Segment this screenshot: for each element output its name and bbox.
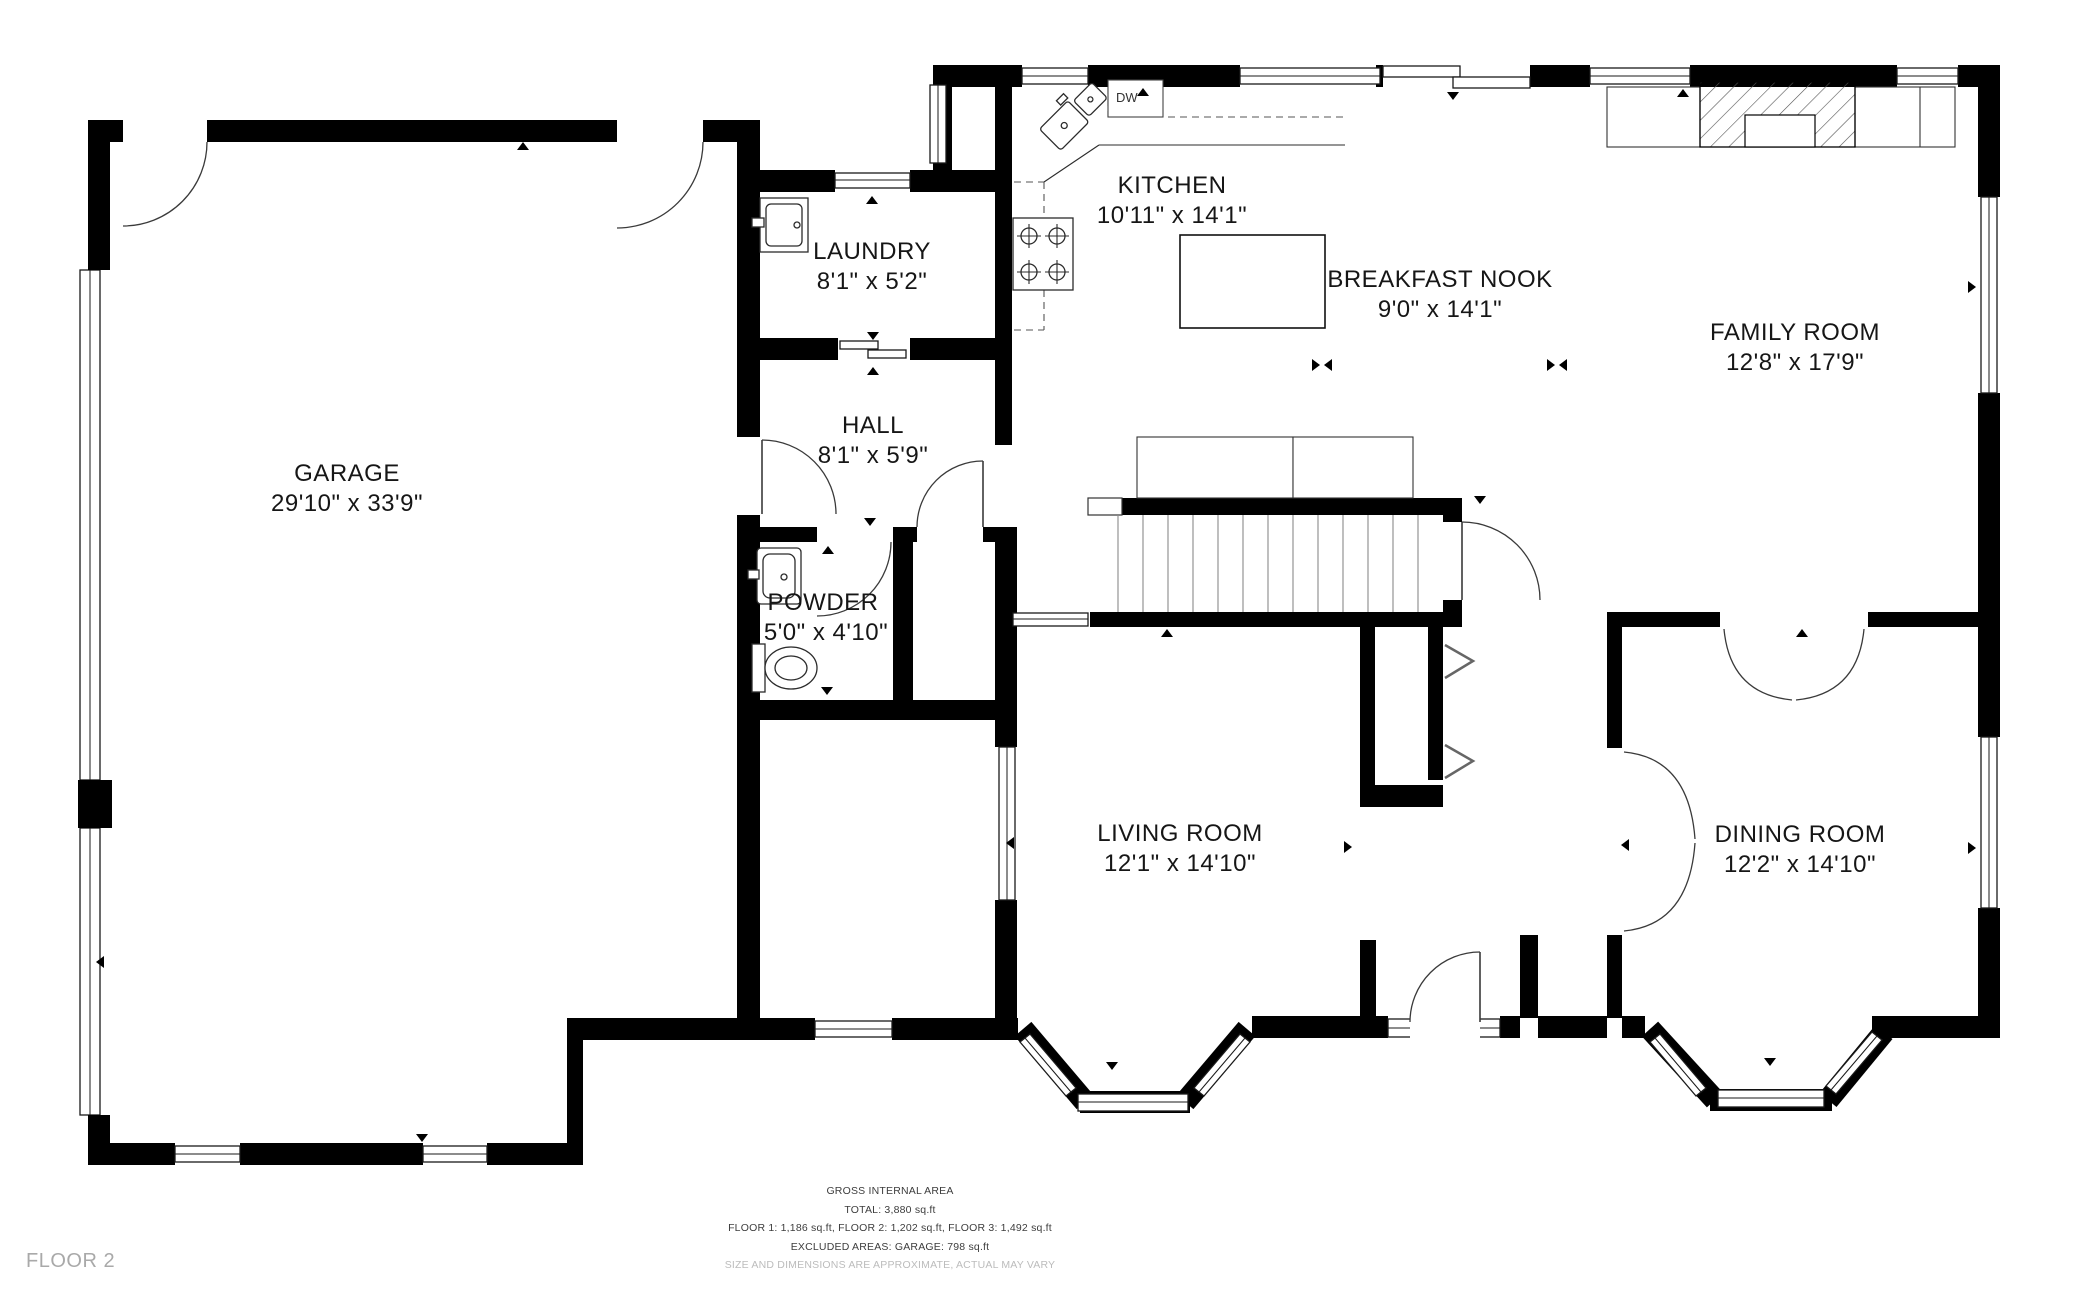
- dining-west-french-door: [1624, 843, 1695, 931]
- excluded-areas: EXCLUDED AREAS: GARAGE: 798 sq.ft: [490, 1238, 1290, 1257]
- dining-french-door: [1724, 629, 1792, 700]
- room-dims-powder: 5'0" x 4'10": [764, 619, 888, 646]
- garage-door-swing-left: [123, 142, 207, 226]
- stair-cabinet: [1137, 437, 1293, 498]
- room-label-living-room: LIVING ROOM: [1097, 820, 1263, 847]
- room-label-garage: GARAGE: [294, 460, 400, 487]
- stair-landing: [1088, 498, 1122, 515]
- stair-family-door: [1462, 522, 1540, 600]
- dishwasher: DW: [1108, 80, 1163, 117]
- total-area: TOTAL: 3,880 sq.ft: [490, 1201, 1290, 1220]
- front-entry-door: [1410, 952, 1480, 1022]
- kitchen-island: [1180, 235, 1325, 328]
- room-dims-kitchen: 10'11" x 14'1": [1097, 202, 1247, 229]
- room-dims-breakfast-nook: 9'0" x 14'1": [1378, 296, 1502, 323]
- firebox: [1745, 115, 1815, 147]
- area-summary: GROSS INTERNAL AREA TOTAL: 3,880 sq.ft F…: [490, 1182, 1290, 1275]
- room-label-family-room: FAMILY ROOM: [1710, 319, 1880, 346]
- room-dims-laundry: 8'1" x 5'2": [817, 268, 927, 295]
- staircase: [1088, 437, 1418, 612]
- dining-french-door: [1796, 629, 1864, 700]
- dishwasher-label: DW: [1116, 90, 1138, 105]
- room-dims-dining-room: 12'2" x 14'10": [1724, 851, 1876, 878]
- windows: [175, 66, 1997, 1162]
- room-label-powder: POWDER: [768, 589, 879, 616]
- hall-closet-door: [917, 461, 983, 527]
- dining-west-french-door: [1624, 752, 1695, 839]
- garage-door-swing-right: [617, 142, 703, 228]
- room-label-dining-room: DINING ROOM: [1715, 821, 1886, 848]
- room-label-breakfast-nook: BREAKFAST NOOK: [1327, 266, 1552, 293]
- gross-area-title: GROSS INTERNAL AREA: [490, 1182, 1290, 1201]
- room-dims-living-room: 12'1" x 14'10": [1104, 850, 1256, 877]
- room-label-laundry: LAUNDRY: [813, 238, 931, 265]
- floor-plan-drawing: DW: [0, 0, 2080, 1299]
- bifold-door-icon: [1445, 745, 1473, 778]
- room-dims-family-room: 12'8" x 17'9": [1726, 349, 1864, 376]
- fireplace-cabinet: [1855, 87, 1955, 147]
- stove-range: [1013, 218, 1073, 290]
- room-labels: GARAGE 29'10" x 33'9" LAUNDRY 8'1" x 5'2…: [271, 172, 1885, 878]
- front-door-gap: [1410, 1016, 1480, 1040]
- doors: [123, 142, 1864, 1022]
- bifold-door-icon: [1445, 645, 1473, 678]
- laundry-sink: [752, 198, 808, 252]
- disclaimer: SIZE AND DIMENSIONS ARE APPROXIMATE, ACT…: [490, 1256, 1290, 1275]
- toilet: [752, 644, 817, 692]
- room-label-hall: HALL: [842, 412, 904, 439]
- floor-areas: FLOOR 1: 1,186 sq.ft, FLOOR 2: 1,202 sq.…: [490, 1219, 1290, 1238]
- garage-door-strips: [80, 270, 100, 1115]
- room-label-kitchen: KITCHEN: [1118, 172, 1227, 199]
- stair-cabinet: [1293, 437, 1413, 498]
- room-dims-hall: 8'1" x 5'9": [818, 442, 928, 469]
- floor-label: FLOOR 2: [26, 1250, 115, 1273]
- room-dims-garage: 29'10" x 33'9": [271, 490, 423, 517]
- floor-plan-page: DW: [0, 0, 2080, 1299]
